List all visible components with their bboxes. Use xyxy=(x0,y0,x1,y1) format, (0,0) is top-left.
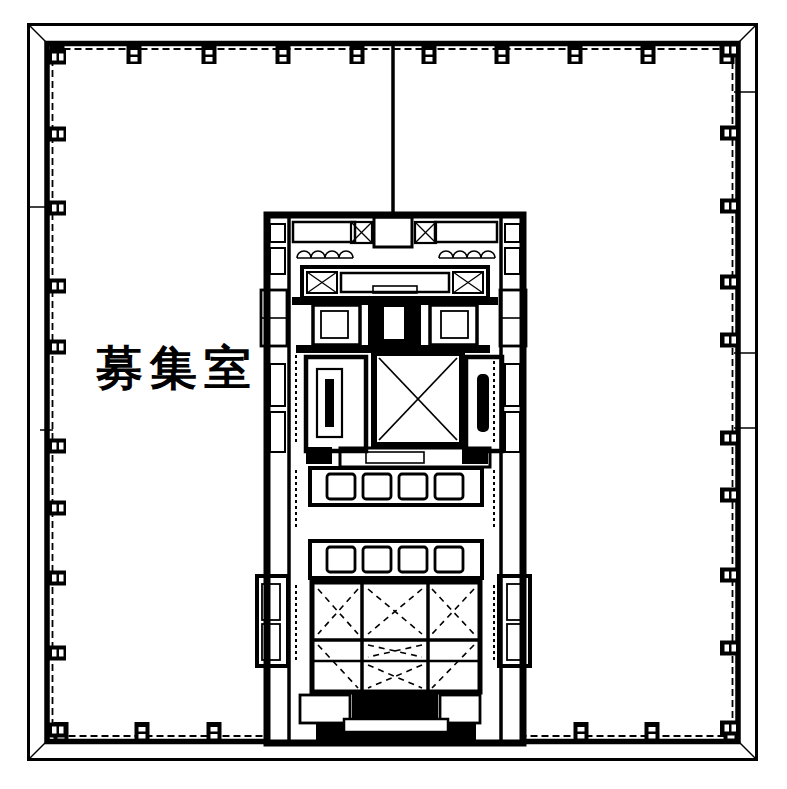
column-marker xyxy=(724,57,731,62)
column-marker xyxy=(52,443,57,450)
column-marker xyxy=(59,443,64,450)
floor-plan: 募集室 xyxy=(0,0,787,789)
column-marker xyxy=(139,727,146,732)
column-marker xyxy=(211,734,218,739)
room-label: 募集室 xyxy=(96,345,258,392)
column-marker xyxy=(720,43,739,58)
column-marker xyxy=(280,50,287,55)
column-marker xyxy=(59,131,64,138)
column-marker xyxy=(720,333,739,348)
column-marker xyxy=(725,725,730,732)
column-marker xyxy=(52,505,57,512)
column-marker xyxy=(572,57,579,62)
column-marker xyxy=(211,727,218,732)
column-marker xyxy=(732,645,737,652)
column-marker xyxy=(426,57,433,62)
column-marker xyxy=(732,572,737,579)
column-marker xyxy=(131,57,138,62)
column-marker xyxy=(725,279,730,286)
column-marker xyxy=(649,727,656,732)
central-stair-shaft xyxy=(374,353,462,445)
column-marker xyxy=(720,641,739,656)
column-marker xyxy=(720,199,739,214)
column-marker xyxy=(725,572,730,579)
column-marker xyxy=(720,721,739,736)
column-marker xyxy=(52,727,57,734)
column-marker xyxy=(59,727,64,734)
floor-plan-drawing xyxy=(0,0,787,789)
column-marker xyxy=(52,283,57,290)
column-marker xyxy=(649,734,656,739)
column-marker xyxy=(725,435,730,442)
column-marker xyxy=(206,57,213,62)
column-marker xyxy=(732,203,737,210)
column-marker xyxy=(52,54,57,61)
column-marker xyxy=(59,344,64,351)
column-marker xyxy=(720,275,739,290)
column-marker xyxy=(426,50,433,55)
column-marker xyxy=(732,492,737,499)
column-marker xyxy=(720,126,739,141)
column-marker xyxy=(59,205,64,212)
column-marker xyxy=(59,54,64,61)
column-marker xyxy=(206,50,213,55)
column-marker xyxy=(732,435,737,442)
column-marker xyxy=(139,734,146,739)
column-marker xyxy=(354,57,361,62)
column-marker xyxy=(732,47,737,54)
column-marker xyxy=(725,203,730,210)
column-marker xyxy=(52,650,57,657)
core-outline xyxy=(267,215,523,743)
column-marker xyxy=(732,337,737,344)
column-marker xyxy=(732,725,737,732)
column-marker xyxy=(725,337,730,344)
column-marker xyxy=(52,344,57,351)
column-marker xyxy=(499,50,506,55)
column-marker xyxy=(725,47,730,54)
column-marker xyxy=(578,734,585,739)
column-marker xyxy=(131,50,138,55)
column-marker xyxy=(59,283,64,290)
column-marker xyxy=(720,568,739,583)
column-marker xyxy=(725,130,730,137)
column-marker xyxy=(725,645,730,652)
column-marker xyxy=(645,57,652,62)
column-marker xyxy=(732,130,737,137)
column-marker xyxy=(645,50,652,55)
service-core xyxy=(257,215,530,743)
column-marker xyxy=(354,50,361,55)
column-marker xyxy=(52,575,57,582)
column-marker xyxy=(280,57,287,62)
column-marker xyxy=(725,492,730,499)
column-marker xyxy=(59,650,64,657)
column-marker xyxy=(578,727,585,732)
column-marker xyxy=(59,575,64,582)
column-marker xyxy=(732,279,737,286)
column-marker xyxy=(499,57,506,62)
column-marker xyxy=(720,431,739,446)
column-marker xyxy=(52,131,57,138)
column-marker xyxy=(572,50,579,55)
column-marker xyxy=(52,205,57,212)
column-marker xyxy=(59,505,64,512)
column-marker xyxy=(720,488,739,503)
